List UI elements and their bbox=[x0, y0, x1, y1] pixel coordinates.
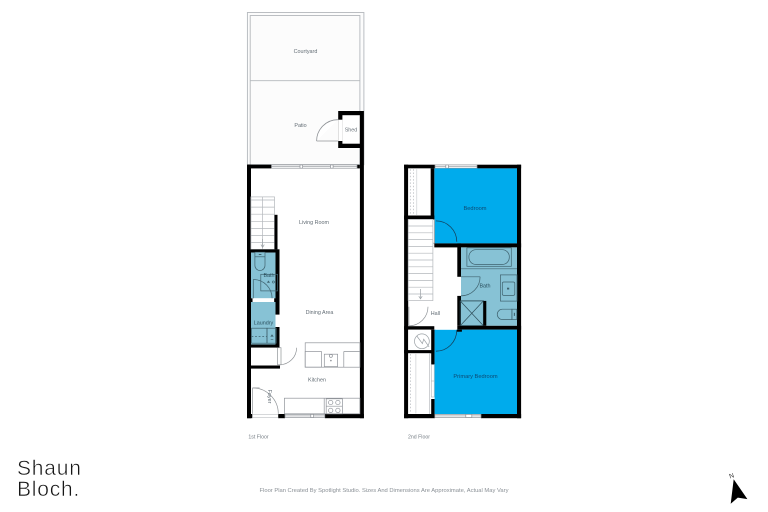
svg-text:Bath: Bath bbox=[263, 273, 274, 279]
svg-text:Shaun: Shaun bbox=[17, 457, 82, 480]
svg-text:1st Floor: 1st Floor bbox=[248, 435, 268, 441]
svg-text:Foyer: Foyer bbox=[266, 390, 272, 404]
svg-text:Bedroom: Bedroom bbox=[463, 206, 486, 212]
svg-text:Bloch.: Bloch. bbox=[17, 478, 80, 501]
svg-text:Courtyard: Courtyard bbox=[294, 49, 318, 55]
svg-text:Hall: Hall bbox=[431, 311, 440, 317]
svg-text:Patio: Patio bbox=[294, 123, 306, 129]
svg-text:Laundry: Laundry bbox=[254, 321, 274, 327]
svg-text:Shed: Shed bbox=[345, 128, 358, 134]
svg-text:Primary Bedroom: Primary Bedroom bbox=[453, 374, 498, 380]
svg-text:Floor Plan Created By Spotligh: Floor Plan Created By Spotlight Studio. … bbox=[260, 488, 509, 494]
svg-text:Living Room: Living Room bbox=[299, 220, 329, 226]
svg-text:Kitchen: Kitchen bbox=[308, 378, 326, 384]
svg-text:Dining Area: Dining Area bbox=[306, 310, 334, 316]
svg-text:Bath: Bath bbox=[479, 284, 490, 290]
svg-text:2nd Floor: 2nd Floor bbox=[408, 435, 430, 441]
